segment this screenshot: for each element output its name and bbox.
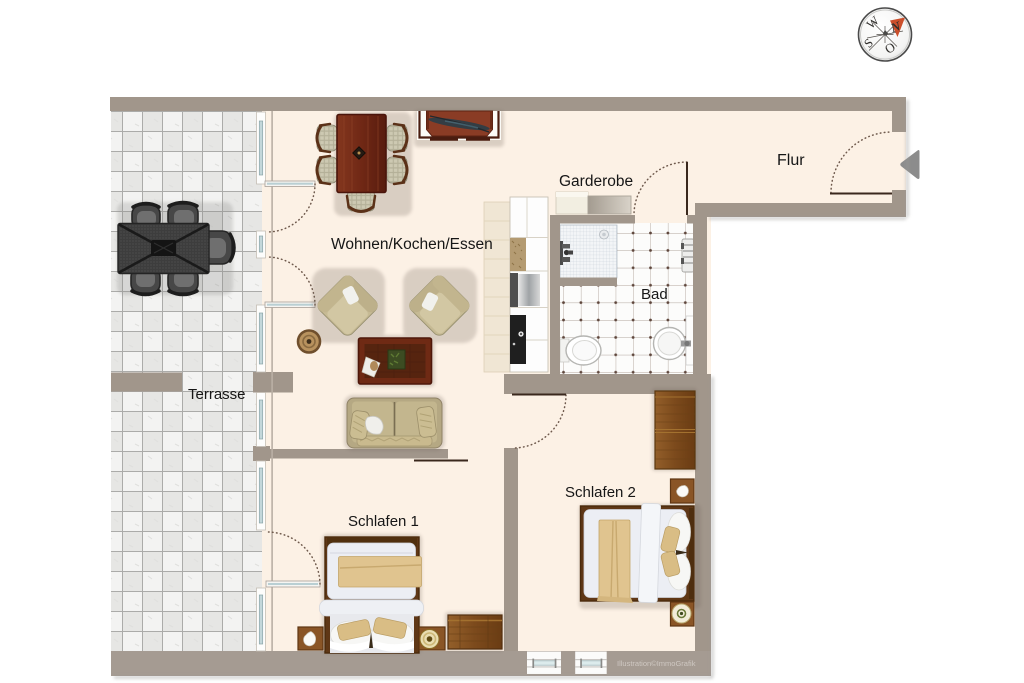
svg-text:Illustration©ImmoGrafik: Illustration©ImmoGrafik xyxy=(617,659,696,668)
svg-text:Bad: Bad xyxy=(641,286,668,303)
svg-text:Terrasse: Terrasse xyxy=(188,386,246,403)
svg-text:Flur: Flur xyxy=(777,152,805,169)
svg-text:Garderobe: Garderobe xyxy=(559,173,633,190)
svg-text:Wohnen/Kochen/Essen: Wohnen/Kochen/Essen xyxy=(331,236,493,253)
svg-text:Schlafen 1: Schlafen 1 xyxy=(348,513,419,530)
svg-text:Schlafen 2: Schlafen 2 xyxy=(565,484,636,501)
